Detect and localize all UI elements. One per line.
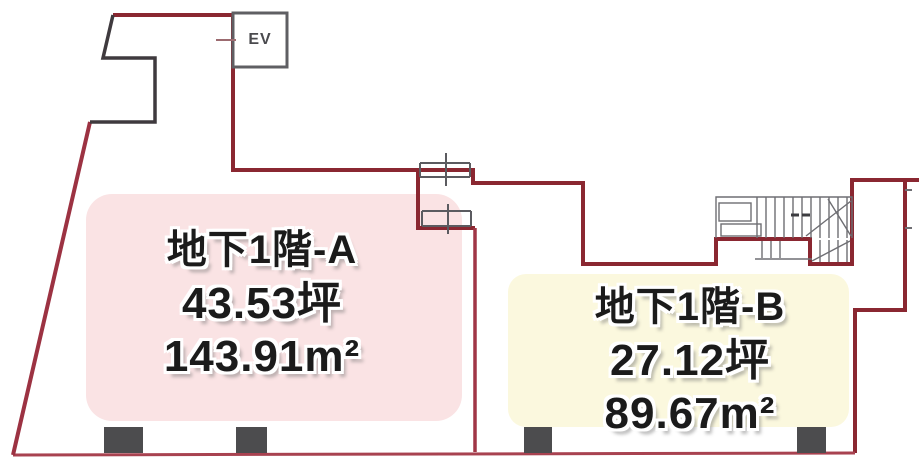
bottom-wall <box>13 453 855 455</box>
pillar <box>236 427 267 453</box>
unit-a-name: 地下1階-A <box>92 224 432 277</box>
left-diagonal-wall <box>13 122 90 455</box>
unit-b-name: 地下1階-B <box>520 281 860 334</box>
floor-plan: EV 地下1階-A 43.53坪 143.91m² 地下1階-B 27.12坪 … <box>0 0 919 475</box>
pillar <box>104 427 143 453</box>
unit-b-info: 地下1階-B 27.12坪 89.67m² <box>520 281 860 440</box>
unit-a-info: 地下1階-A 43.53坪 143.91m² <box>92 224 432 383</box>
unit-a-area: 143.91m² <box>92 330 432 383</box>
staircase <box>716 197 852 262</box>
unit-a-tsubo: 43.53坪 <box>92 277 432 330</box>
unit-b-tsubo: 27.12坪 <box>520 334 860 387</box>
elevator-label: EV <box>233 13 287 67</box>
unit-b-area: 89.67m² <box>520 387 860 440</box>
left-notch-wall <box>90 15 155 122</box>
